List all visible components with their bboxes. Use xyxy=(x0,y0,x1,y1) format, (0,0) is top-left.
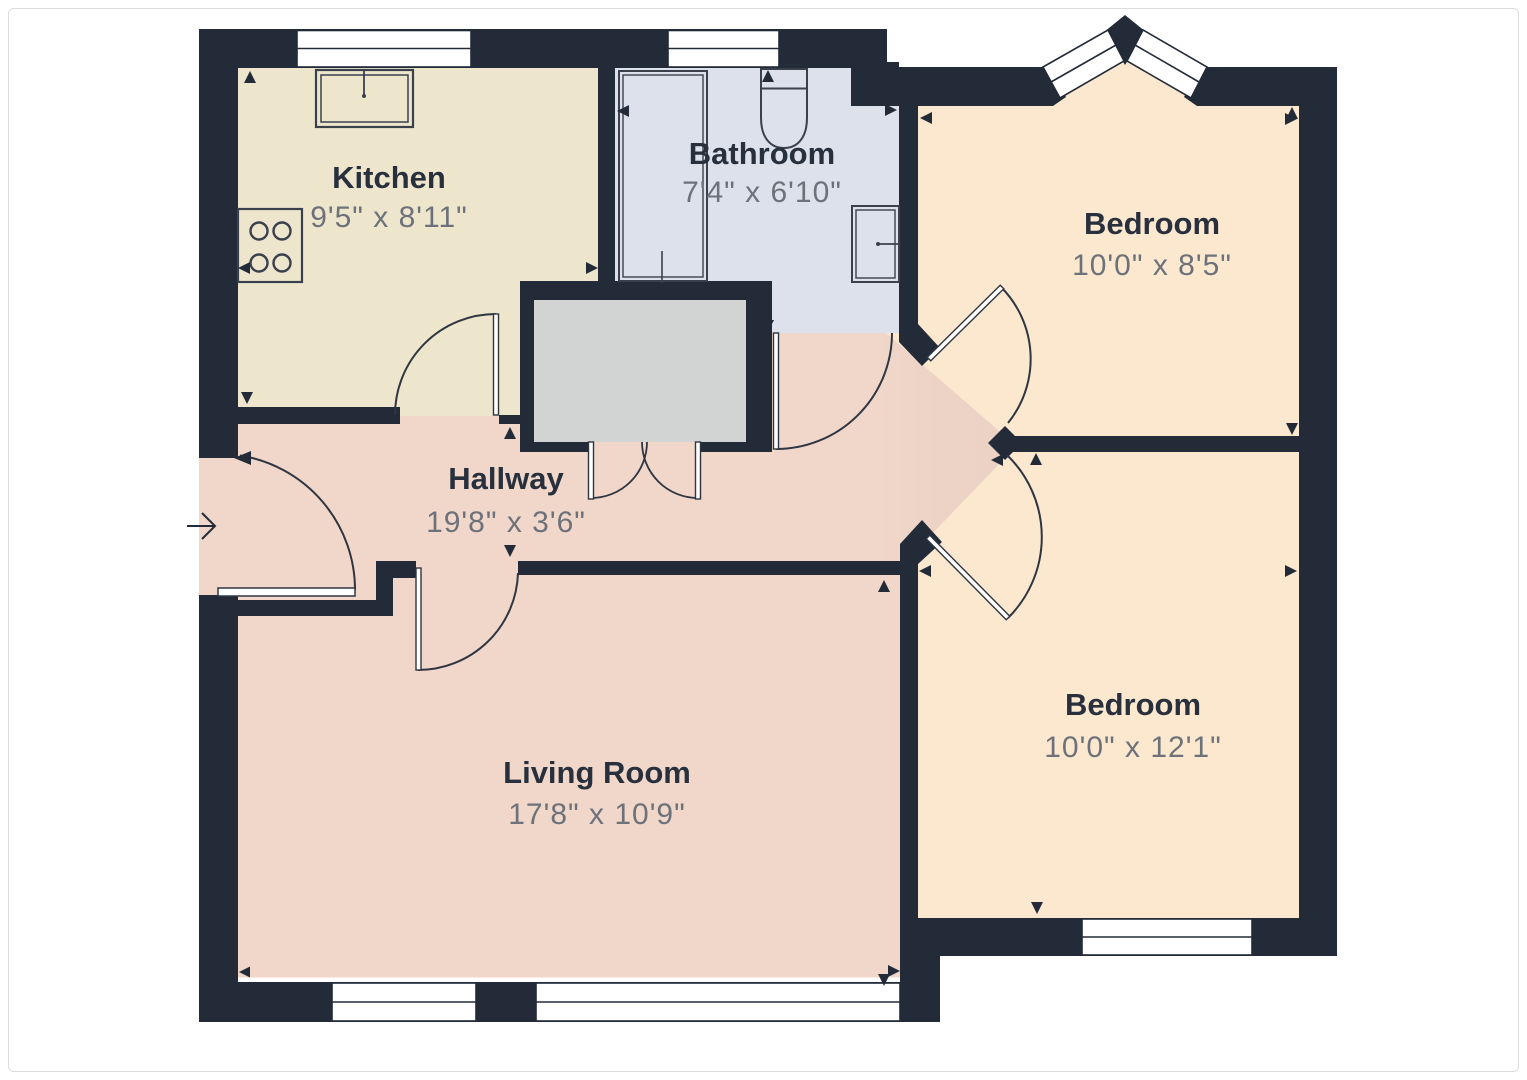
svg-text:Bedroom: Bedroom xyxy=(1084,206,1220,241)
svg-text:Bedroom: Bedroom xyxy=(1065,687,1201,722)
svg-text:10'0" x 12'1": 10'0" x 12'1" xyxy=(1044,731,1222,764)
svg-text:17'8" x 10'9": 17'8" x 10'9" xyxy=(508,798,686,831)
svg-text:10'0" x 8'5": 10'0" x 8'5" xyxy=(1072,249,1232,282)
svg-text:9'5" x 8'11": 9'5" x 8'11" xyxy=(310,201,468,234)
svg-text:Hallway: Hallway xyxy=(448,461,564,496)
svg-text:19'8" x 3'6": 19'8" x 3'6" xyxy=(426,506,586,539)
svg-text:Kitchen: Kitchen xyxy=(332,160,446,195)
svg-text:Living Room: Living Room xyxy=(503,755,691,790)
svg-text:Bathroom: Bathroom xyxy=(689,136,835,171)
svg-text:7'4" x 6'10": 7'4" x 6'10" xyxy=(682,176,842,209)
